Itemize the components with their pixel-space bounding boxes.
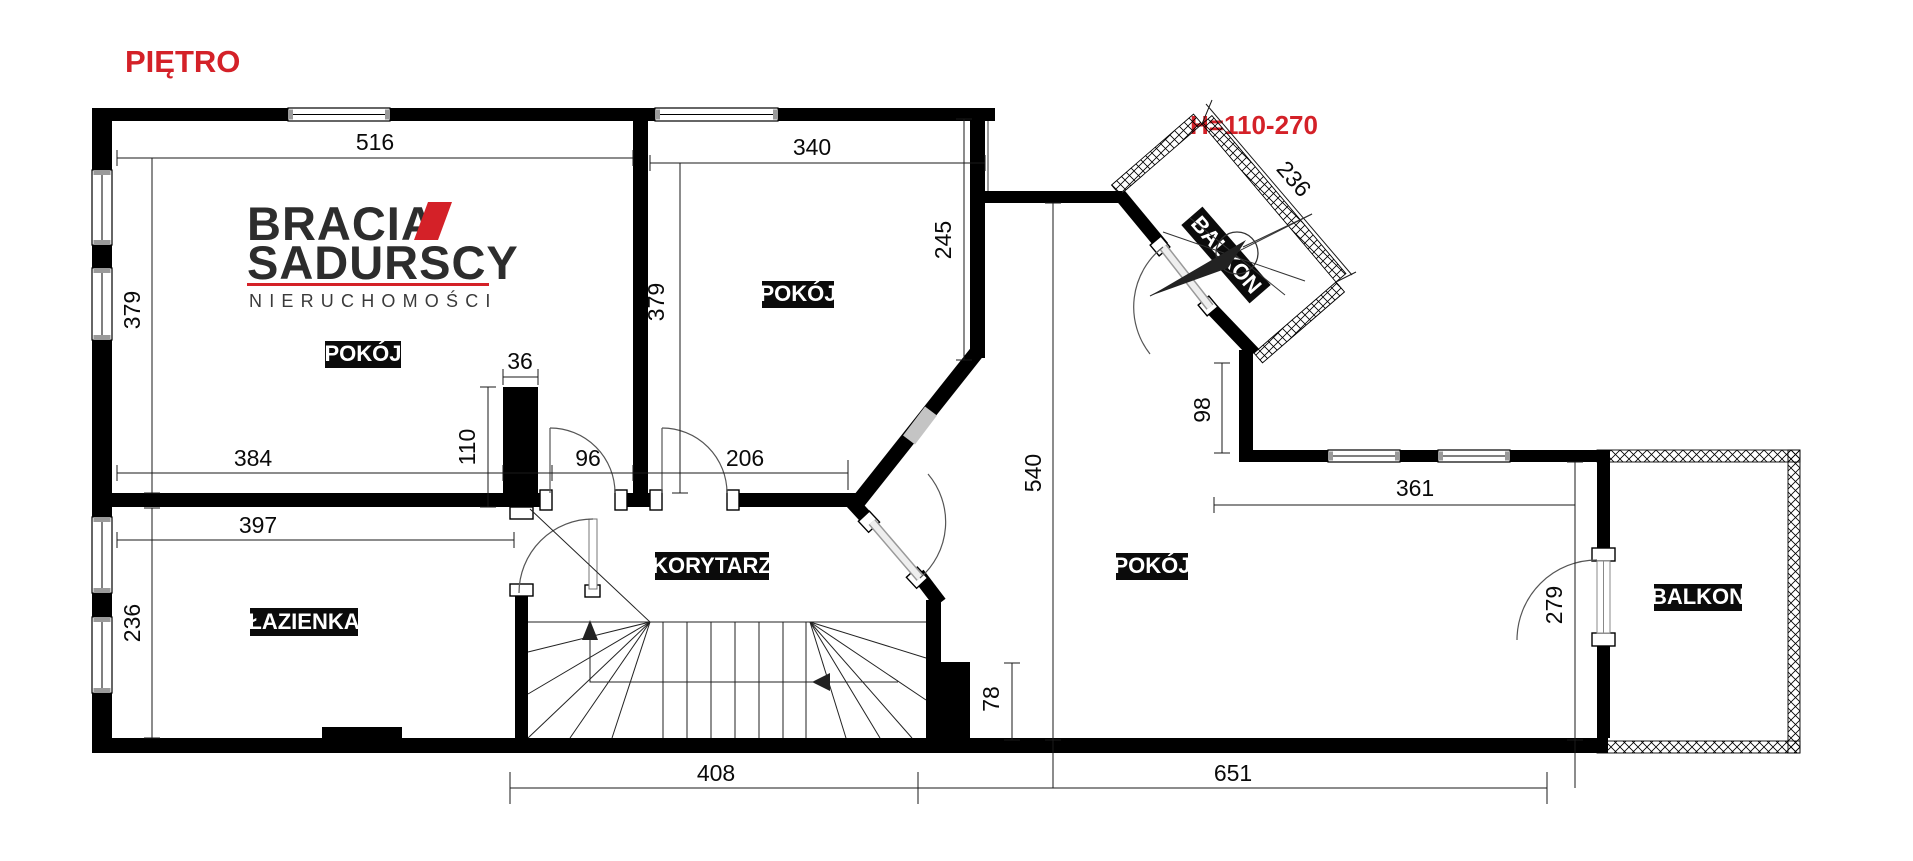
dim-block-height: 78 <box>978 686 1004 712</box>
dim-room3-width: 361 <box>1396 475 1434 501</box>
dim-line-397 <box>117 532 514 548</box>
window-symbol <box>92 268 112 340</box>
dim-line-379-room1 <box>144 158 160 493</box>
dim-bathroom-height: 236 <box>119 604 145 642</box>
dim-door-room2: 206 <box>726 445 764 471</box>
window-symbol <box>92 170 112 245</box>
dim-line-379-room2 <box>672 163 688 493</box>
window-symbol <box>1328 450 1400 462</box>
dim-hall-height: 540 <box>1020 454 1046 492</box>
svg-text:KORYTARZ: KORYTARZ <box>652 553 772 578</box>
stairs-up-arrow-icon <box>582 620 598 640</box>
floor-plan-canvas: PIĘTRO H=110-270 BRACIA SADURSCY NIERUCH… <box>0 0 1913 861</box>
dim-line-98 <box>1214 363 1230 453</box>
stairs-direction-arrow-icon <box>812 673 830 691</box>
dim-line-78 <box>1004 663 1020 740</box>
dim-bottom-left: 408 <box>697 760 735 786</box>
window-symbol <box>1438 450 1510 462</box>
logo-line2: SADURSCY <box>247 236 519 289</box>
svg-text:ŁAZIENKA: ŁAZIENKA <box>248 609 359 634</box>
radiator-mark <box>322 727 402 738</box>
dim-bathroom-width: 397 <box>239 512 277 538</box>
dim-line-540 <box>1045 203 1061 788</box>
room-label-pokoj-3: POKÓJ <box>1113 553 1190 580</box>
logo-underline <box>247 283 489 286</box>
window-symbol <box>92 517 112 593</box>
dim-line-361 <box>1214 493 1575 517</box>
stairs <box>528 509 926 738</box>
dim-nook-height: 98 <box>1189 397 1215 423</box>
diagonal-door-gap <box>909 411 931 440</box>
dim-room2-width: 340 <box>793 134 831 160</box>
window-symbol <box>655 108 778 121</box>
dim-room1-bottom: 384 <box>234 445 273 471</box>
door-swing <box>1134 236 1218 354</box>
balcony-hatched-walls <box>1112 114 1801 753</box>
svg-text:POKÓJ: POKÓJ <box>1113 553 1190 578</box>
dim-room1-width: 516 <box>356 129 394 155</box>
dim-line-245 <box>956 119 972 360</box>
floor-plan-page: PIĘTRO H=110-270 BRACIA SADURSCY NIERUCH… <box>0 0 1913 861</box>
svg-text:POKÓJ: POKÓJ <box>759 281 836 306</box>
window-symbol <box>92 617 112 693</box>
door-swing <box>510 507 600 597</box>
logo-line3: NIERUCHOMOŚCI <box>249 290 498 311</box>
dim-room2-height: 379 <box>643 283 669 321</box>
wall-block-78 <box>926 662 970 740</box>
page-title: PIĘTRO <box>125 44 240 79</box>
dim-bottom-right: 651 <box>1214 760 1252 786</box>
doors <box>510 236 1615 646</box>
room-label-pokoj-2: POKÓJ <box>759 281 836 308</box>
dim-chain-408-651 <box>510 772 1547 804</box>
dim-chimney-height: 110 <box>454 429 480 466</box>
window-symbol <box>288 108 390 121</box>
dim-door-room1: 96 <box>575 445 601 471</box>
dim-line-110 <box>480 387 496 507</box>
svg-text:POKÓJ: POKÓJ <box>324 341 401 366</box>
dim-line-236-bathroom <box>144 508 160 738</box>
agency-logo: BRACIA SADURSCY NIERUCHOMOŚCI <box>247 197 519 311</box>
room-label-balkon-right: BALKON <box>1651 584 1745 611</box>
room-label-korytarz: KORYTARZ <box>652 552 772 580</box>
room-label-lazienka: ŁAZIENKA <box>248 608 359 636</box>
dim-room2-right: 245 <box>930 221 956 259</box>
dim-room3-right-height: 279 <box>1541 586 1567 624</box>
svg-text:BALKON: BALKON <box>1651 584 1745 609</box>
dim-room1-height: 379 <box>119 291 145 329</box>
room-label-pokoj-1: POKÓJ <box>324 341 401 368</box>
chimney-pillar <box>503 387 538 507</box>
dim-chimney-width: 36 <box>507 348 533 374</box>
